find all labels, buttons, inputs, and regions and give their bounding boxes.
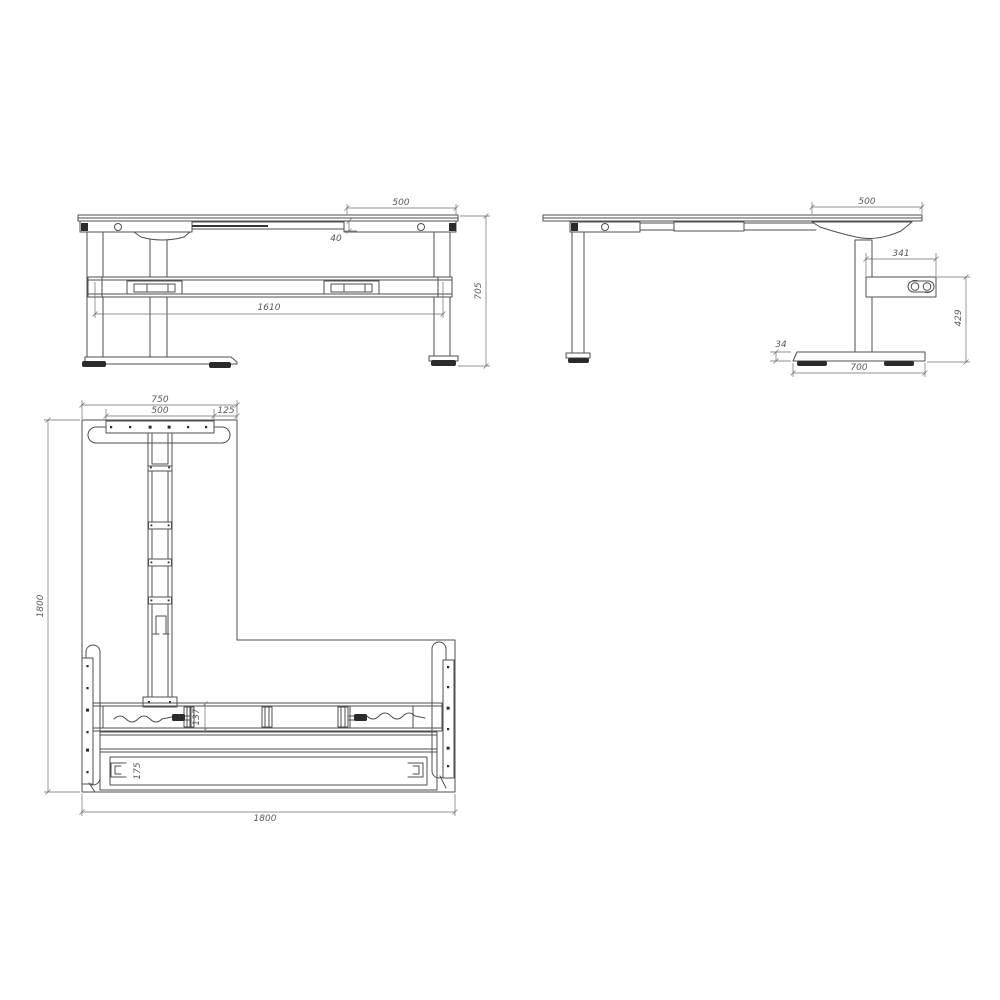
dim-label-side-700: 700: [850, 363, 867, 373]
leg-mount-bracket: [134, 232, 190, 240]
dim-label-side-429: 429: [954, 309, 964, 326]
mounting-plate: [106, 421, 214, 433]
adjustment-hole: [115, 224, 122, 231]
adjustment-hole: [602, 224, 609, 231]
adjustment-hole: [418, 224, 425, 231]
dim-label-plan-125: 125: [217, 406, 234, 416]
dim-label-plan-175: 175: [133, 762, 143, 779]
corner-bracket: [408, 763, 423, 777]
tabletop: [78, 215, 458, 221]
dim-label-side-500: 500: [858, 197, 875, 207]
dim-label-plan-width-1800: 1800: [254, 814, 277, 824]
dimension-ticks: [46, 403, 458, 815]
plan-view: 750 500 125 1800 1800 137 175: [36, 395, 458, 824]
cable-plug-icon: [172, 714, 185, 721]
dim-label-front-40: 40: [330, 234, 342, 244]
dim-label-front-1610: 1610: [258, 303, 281, 313]
tabletop-outline: [82, 420, 455, 792]
dim-label-front-705: 705: [474, 282, 484, 299]
dim-label-side-34: 34: [775, 340, 787, 350]
drawing-canvas: 500 40 1610 705 500 341 429 34 700: [0, 0, 1000, 1000]
rear-rail: [100, 732, 437, 752]
right-foot-plate: [443, 660, 454, 778]
foot-pad: [797, 361, 827, 366]
left-foot: [566, 353, 590, 358]
foot-pad: [568, 358, 589, 363]
mount-bracket: [571, 223, 578, 231]
dim-label-side-341: 341: [892, 249, 909, 259]
beam-connectors: [184, 707, 348, 727]
technical-drawing: 500 40 1610 705 500 341 429 34 700: [0, 0, 1000, 1000]
foot-pad: [82, 361, 106, 367]
rail-slider: [674, 222, 744, 231]
rear-bar: [100, 752, 437, 790]
right-foot: [793, 352, 925, 361]
foot-pad: [431, 360, 456, 366]
dim-label-plan-depth-1800: 1800: [36, 594, 46, 617]
corner-bracket: [111, 763, 126, 777]
side-view: 500 341 429 34 700: [543, 197, 970, 377]
front-view: 500 40 1610 705: [78, 198, 490, 369]
lifting-column: [148, 433, 172, 703]
dim-label-plan-750: 750: [151, 395, 168, 405]
leg-mount-bracket: [812, 222, 912, 239]
control-box: [866, 277, 936, 297]
middle-leg: [150, 239, 167, 361]
left-leg: [572, 232, 584, 353]
dim-label-front-500: 500: [392, 198, 409, 208]
mount-bracket: [449, 223, 456, 231]
foot-pad: [209, 362, 231, 368]
left-foot-plate: [82, 658, 93, 784]
cable-plug-icon: [354, 714, 367, 721]
foot-pad: [884, 361, 914, 366]
dimension-lines: [44, 400, 455, 816]
dim-label-plan-137: 137: [192, 708, 202, 725]
column-bracket: [153, 616, 169, 634]
tabletop: [543, 215, 922, 221]
mount-bracket: [81, 223, 88, 231]
power-cable: [367, 713, 425, 719]
power-cable: [114, 716, 172, 722]
dim-label-plan-500: 500: [151, 406, 168, 416]
rung-rivets: [150, 467, 170, 602]
